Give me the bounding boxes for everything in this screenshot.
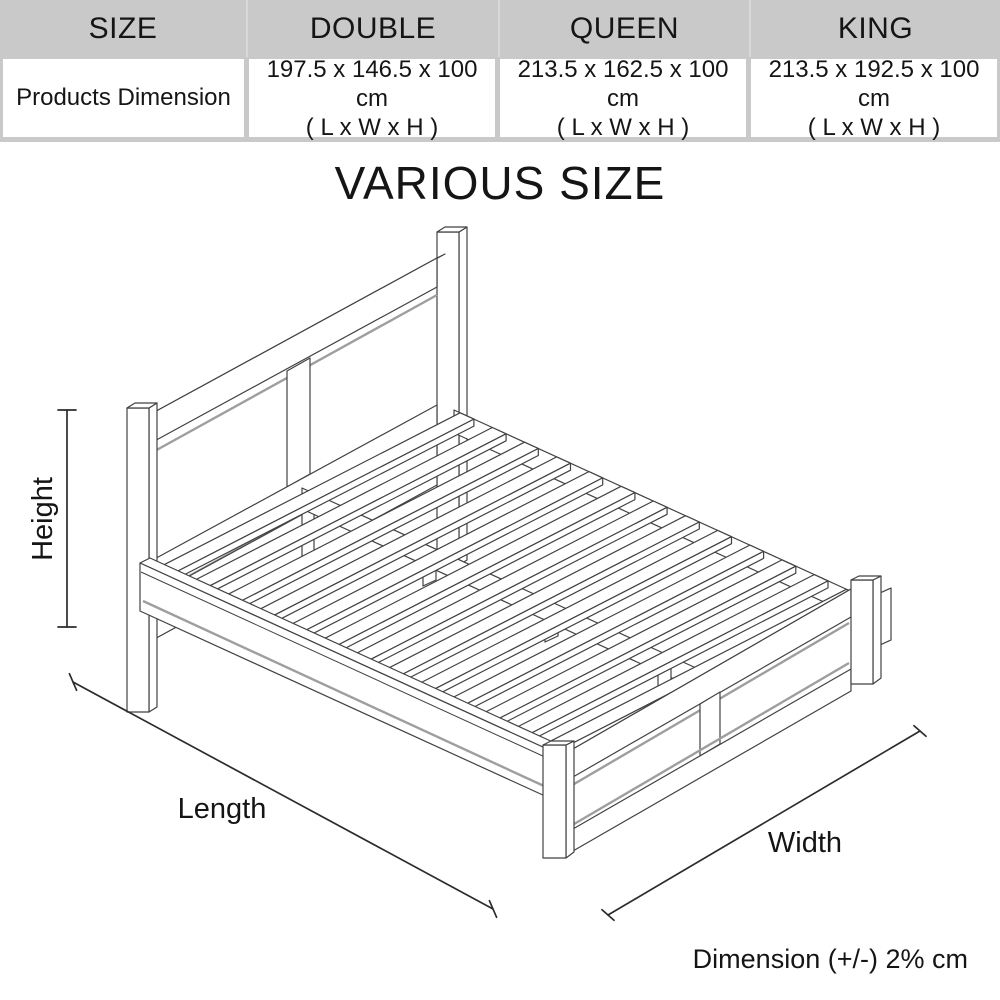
width-label: Width bbox=[768, 827, 842, 859]
tolerance-note: Dimension (+/-) 2% cm bbox=[693, 944, 968, 974]
length-label: Length bbox=[178, 793, 267, 825]
height-label: Height bbox=[27, 477, 59, 561]
bed-diagram: Height Length Width Dimension (+/-) 2% c… bbox=[0, 0, 1000, 1000]
height-dimension-line: Height bbox=[27, 410, 76, 627]
product-dimension-infographic: SIZE DOUBLE QUEEN KING Products Dimensio… bbox=[0, 0, 1000, 1000]
width-dimension-line: Width bbox=[602, 726, 926, 921]
bed-slats bbox=[156, 413, 860, 759]
footboard bbox=[543, 576, 891, 858]
